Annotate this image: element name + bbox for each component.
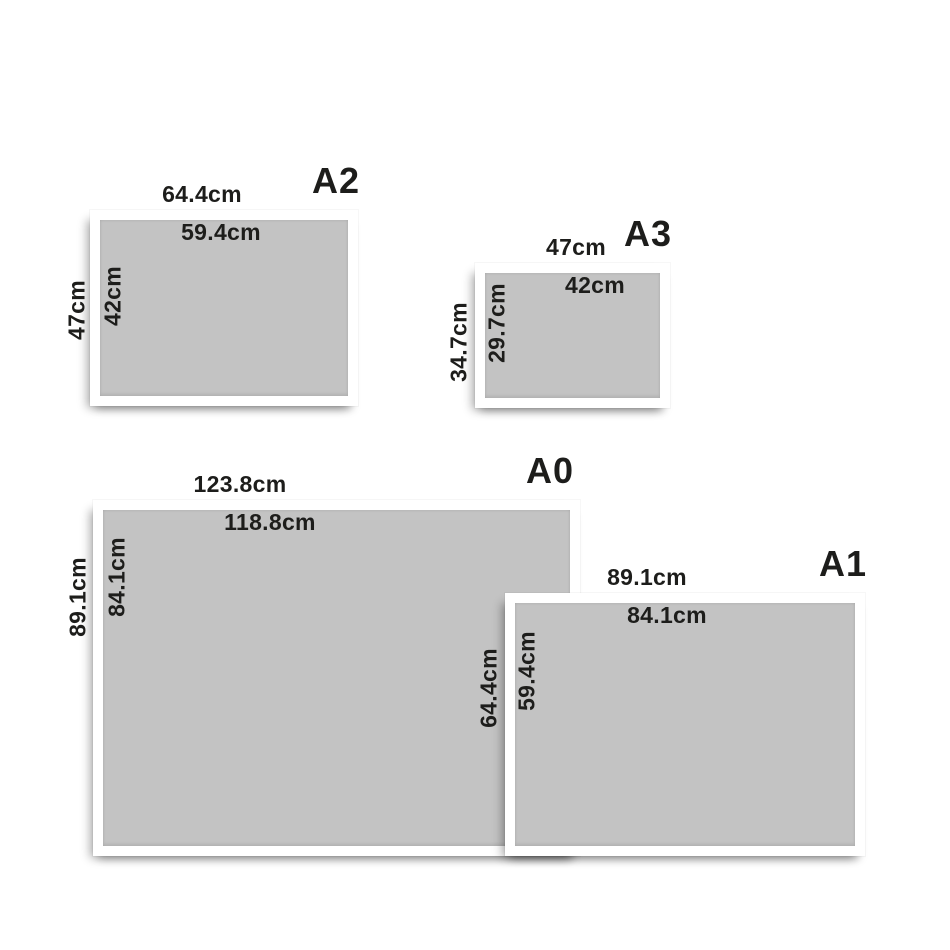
inner-width-label-a3: 42cm <box>565 274 625 297</box>
inner-height-label-a0: 84.1cm <box>106 537 129 617</box>
outer-width-label-a1: 89.1cm <box>607 566 687 589</box>
frame-a1: A1 89.1cm 84.1cm 64.4cm 59.4cm <box>505 593 865 856</box>
outer-height-label-a0: 89.1cm <box>67 557 90 637</box>
outer-height-label-a3: 34.7cm <box>448 302 471 382</box>
inner-height-label-a3: 29.7cm <box>486 283 509 363</box>
size-name-label-a2: A2 <box>312 163 360 199</box>
paper-area-a2 <box>100 220 348 396</box>
outer-height-label-a2: 47cm <box>66 280 89 340</box>
size-comparison-diagram: A2 64.4cm 59.4cm 47cm 42cm A3 47cm 42cm … <box>0 0 950 950</box>
inner-width-label-a2: 59.4cm <box>181 221 261 244</box>
inner-width-label-a1: 84.1cm <box>627 604 707 627</box>
outer-height-label-a1: 64.4cm <box>478 648 501 728</box>
frame-a3: A3 47cm 42cm 34.7cm 29.7cm <box>475 263 670 408</box>
inner-width-label-a0: 118.8cm <box>224 511 316 534</box>
inner-height-label-a2: 42cm <box>102 266 125 326</box>
size-name-label-a0: A0 <box>526 453 574 489</box>
outer-width-label-a3: 47cm <box>546 236 606 259</box>
size-name-label-a3: A3 <box>624 216 672 252</box>
outer-width-label-a0: 123.8cm <box>194 473 287 496</box>
size-name-label-a1: A1 <box>819 546 867 582</box>
inner-height-label-a1: 59.4cm <box>516 631 539 711</box>
outer-width-label-a2: 64.4cm <box>162 183 242 206</box>
frame-a2: A2 64.4cm 59.4cm 47cm 42cm <box>90 210 358 406</box>
paper-area-a1 <box>515 603 855 846</box>
